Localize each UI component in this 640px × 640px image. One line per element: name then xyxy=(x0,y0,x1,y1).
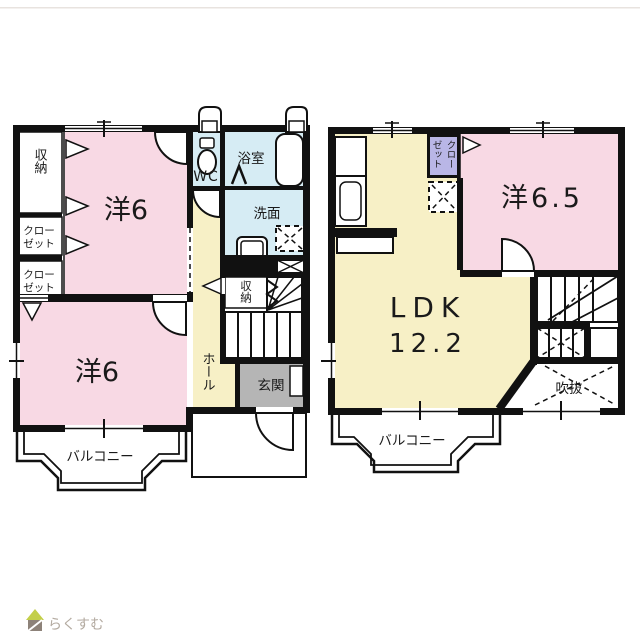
wall xyxy=(220,125,225,358)
outer-wall-top-2f xyxy=(328,127,625,134)
wall xyxy=(530,358,618,364)
label-closet2-l2: ゼット xyxy=(23,282,55,294)
label-bedroom-top: 洋6 xyxy=(104,195,148,226)
label-bedroom-2f: 洋6.5 xyxy=(501,183,583,214)
counter-icon xyxy=(277,260,304,273)
wall xyxy=(537,322,590,328)
label-hall: ホール xyxy=(200,352,215,391)
label-balcony-right: バルコニー xyxy=(378,433,445,449)
label-balcony-left: バルコニー xyxy=(66,449,133,465)
wall xyxy=(585,322,590,358)
floorplan-image: 収納 クロー ゼット クロー ゼット 洋6 WC 浴室 洗面 収納 ホール 玄関… xyxy=(0,0,640,640)
floorplan-svg: 収納 クロー ゼット クロー ゼット 洋6 WC 浴室 洗面 収納 ホール 玄関… xyxy=(0,0,640,640)
washer-pan-icon xyxy=(276,226,304,251)
wall xyxy=(17,213,62,217)
closet2-door-gap xyxy=(20,295,48,301)
wall xyxy=(235,364,240,407)
vent-icon xyxy=(286,107,307,132)
label-closet-2f-col2: ゼット xyxy=(431,140,443,169)
vent-icon xyxy=(199,107,221,132)
outer-wall-top xyxy=(13,125,310,132)
outer-wall-right-2f xyxy=(618,127,625,415)
wall xyxy=(17,255,62,261)
bedroom-bottom-door-gap xyxy=(153,295,187,301)
label-storage-stairs: 収納 xyxy=(239,280,253,304)
floor-plan-left: 収納 クロー ゼット クロー ゼット 洋6 WC 浴室 洗面 収納 ホール 玄関… xyxy=(9,107,310,490)
logo: らくすむ xyxy=(26,609,104,633)
wall xyxy=(225,186,310,190)
entrance-step xyxy=(290,366,303,396)
bathtub-icon xyxy=(276,134,303,186)
label-closet1-l2: ゼット xyxy=(23,238,55,250)
label-void: 吹抜 xyxy=(556,381,584,397)
room-hall-ext xyxy=(220,364,235,407)
label-closet2-l1: クロー xyxy=(23,269,55,281)
wall xyxy=(187,292,193,302)
label-closet-2f-col1: クロー xyxy=(445,140,456,169)
label-bedroom-bottom: 洋6 xyxy=(75,357,119,388)
wall xyxy=(220,358,310,364)
sliding-door-dashed xyxy=(187,228,193,292)
label-storage-top: 収納 xyxy=(32,148,48,175)
window-left-2f xyxy=(321,343,336,378)
label-wash: 洗面 xyxy=(254,206,281,222)
outer-wall-left xyxy=(13,125,20,432)
label-closet1-l1: クロー xyxy=(23,225,55,237)
wall xyxy=(460,270,618,277)
wall xyxy=(457,178,463,270)
label-bath: 浴室 xyxy=(238,150,265,167)
logo-text: らくすむ xyxy=(48,617,104,633)
outer-wall-right xyxy=(303,125,310,413)
hatch-icon xyxy=(429,182,458,212)
wall xyxy=(530,270,537,365)
label-ldk-size: 12.2 xyxy=(389,329,467,359)
label-wc: WC xyxy=(193,169,219,185)
page-top-rule xyxy=(0,7,640,9)
floor-plan-right: クロー ゼット 洋6.5 LDK 12.2 吹抜 バルコニー xyxy=(321,121,625,472)
label-entrance: 玄関 xyxy=(258,377,285,394)
stairs-2f-upper xyxy=(537,272,618,322)
stairs-2f-landing xyxy=(590,328,618,358)
logo-house-roof-icon xyxy=(26,609,44,620)
label-ldk: LDK xyxy=(390,291,467,324)
